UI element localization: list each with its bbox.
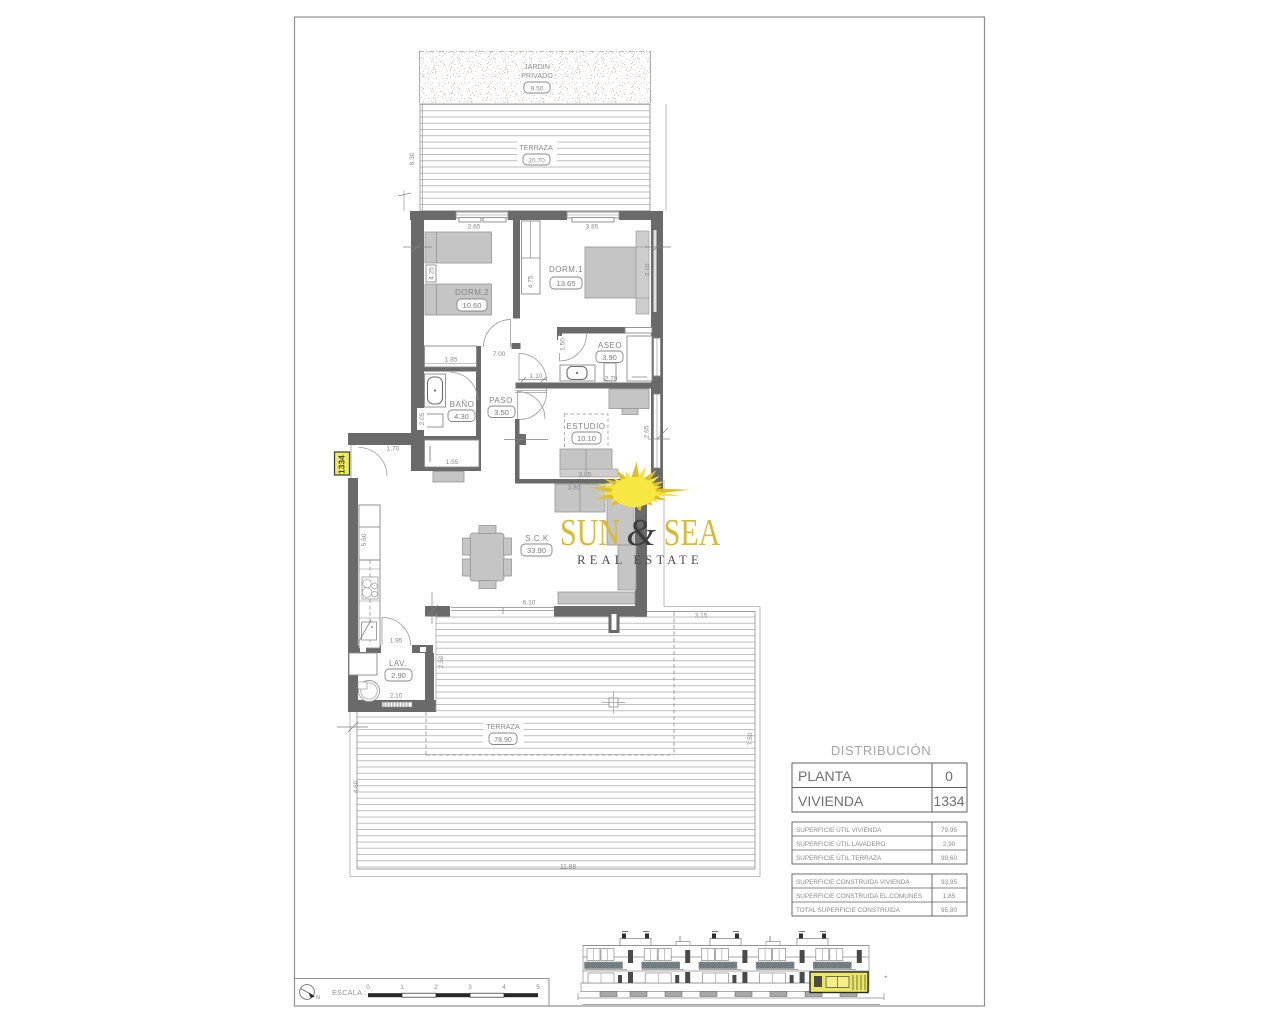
svg-text:13.65: 13.65: [556, 279, 575, 288]
svg-text:TOTAL SUPERFICIE CONSTRUIDA: TOTAL SUPERFICIE CONSTRUIDA: [796, 907, 901, 914]
svg-text:4: 4: [502, 984, 506, 991]
svg-text:SUPERFICIE ÚTIL VIVIENDA: SUPERFICIE ÚTIL VIVIENDA: [796, 825, 882, 834]
svg-text:2.90: 2.90: [391, 671, 406, 680]
svg-text:79,95: 79,95: [941, 827, 957, 834]
svg-text:ESCALA :: ESCALA :: [332, 988, 366, 997]
svg-text:ESTUDIO: ESTUDIO: [566, 422, 605, 431]
svg-text:1,85: 1,85: [943, 893, 956, 900]
svg-text:SUN: SUN: [560, 512, 620, 554]
svg-text:10.10: 10.10: [577, 434, 596, 443]
svg-text:3.85: 3.85: [586, 224, 599, 231]
svg-text:3.85: 3.85: [579, 472, 592, 479]
svg-text:1.70: 1.70: [387, 446, 400, 453]
svg-text:1.50: 1.50: [560, 338, 567, 351]
svg-text:DORM.1: DORM.1: [549, 265, 583, 274]
svg-text:BAÑO: BAÑO: [450, 400, 475, 409]
svg-text:SUPERFICIE CONSTRUIDA VIVIENDA: SUPERFICIE CONSTRUIDA VIVIENDA: [796, 879, 910, 886]
svg-text:2.10: 2.10: [390, 693, 403, 700]
svg-text:2,90: 2,90: [943, 841, 956, 848]
svg-text:ASEO: ASEO: [598, 341, 622, 350]
svg-text:78.90: 78.90: [494, 737, 512, 744]
svg-text:1334: 1334: [933, 793, 964, 809]
svg-text:99,60: 99,60: [941, 855, 957, 862]
svg-text:0: 0: [945, 768, 953, 784]
svg-text:20.70: 20.70: [528, 158, 545, 165]
svg-text:DORM.2: DORM.2: [455, 288, 489, 297]
svg-text:DISTRIBUCIÓN: DISTRIBUCIÓN: [831, 743, 931, 758]
svg-text:S.C.K: S.C.K: [525, 534, 549, 543]
svg-text:PLANTA: PLANTA: [798, 768, 852, 784]
svg-text:33.90: 33.90: [527, 546, 546, 555]
svg-text:VIVIENDA: VIVIENDA: [798, 793, 864, 809]
svg-text:11.88: 11.88: [560, 864, 576, 871]
svg-text:3.80: 3.80: [568, 485, 581, 492]
svg-text:SUPERFICIE CONSTRUIDA EL.COMUN: SUPERFICIE CONSTRUIDA EL.COMUNES: [796, 893, 922, 900]
svg-text:0: 0: [366, 984, 370, 991]
svg-text:2.05: 2.05: [419, 412, 426, 425]
svg-text:LAV.: LAV.: [389, 659, 407, 668]
svg-text:2.70: 2.70: [605, 376, 618, 383]
svg-text:2.65: 2.65: [468, 224, 481, 231]
svg-text:1.95: 1.95: [390, 638, 403, 645]
svg-text:7.50: 7.50: [747, 732, 754, 745]
svg-text:1.85: 1.85: [445, 357, 458, 364]
svg-text:SUPERFICIE ÚTIL LAVADERO: SUPERFICIE ÚTIL LAVADERO: [796, 839, 885, 848]
svg-text:1.10: 1.10: [530, 373, 543, 380]
svg-text:3.90: 3.90: [602, 353, 617, 362]
svg-text:N: N: [316, 995, 320, 1001]
svg-text:7.00: 7.00: [493, 351, 506, 358]
svg-text:PASO: PASO: [489, 396, 513, 405]
svg-text:3.10: 3.10: [645, 263, 652, 276]
svg-text:4.75: 4.75: [528, 275, 535, 288]
svg-text:JARDIN: JARDIN: [524, 62, 550, 71]
svg-text:1.55: 1.55: [446, 459, 459, 466]
svg-text:1334: 1334: [337, 455, 347, 474]
svg-text:2.65: 2.65: [644, 425, 651, 438]
svg-text:95,80: 95,80: [941, 907, 957, 914]
svg-text:TERRAZA: TERRAZA: [486, 722, 520, 731]
svg-text:3.50: 3.50: [494, 408, 509, 417]
svg-text:SUPERFICIE ÚTIL TERRAZA: SUPERFICIE ÚTIL TERRAZA: [796, 853, 882, 862]
svg-text:4.30: 4.30: [454, 412, 469, 421]
svg-text:9.50: 9.50: [531, 86, 544, 93]
svg-text:SEA: SEA: [664, 512, 721, 554]
svg-text:4.25: 4.25: [429, 267, 436, 280]
svg-text:6.10: 6.10: [523, 600, 536, 607]
svg-text:2: 2: [434, 984, 438, 991]
svg-text:3.15: 3.15: [695, 613, 708, 620]
svg-text:&: &: [626, 512, 656, 554]
svg-text:+: +: [884, 975, 888, 981]
svg-text:1: 1: [400, 984, 404, 991]
svg-text:REAL ESTATE: REAL ESTATE: [577, 553, 703, 567]
svg-text:8.30: 8.30: [409, 152, 416, 165]
svg-text:3: 3: [468, 984, 472, 991]
svg-text:4.60: 4.60: [353, 780, 360, 793]
svg-text:5: 5: [536, 984, 540, 991]
svg-text:PRIVADO: PRIVADO: [521, 71, 553, 80]
svg-text:TERRAZA: TERRAZA: [519, 143, 553, 152]
svg-text:5.60: 5.60: [361, 533, 368, 546]
svg-text:10.60: 10.60: [462, 301, 481, 310]
svg-text:93,95: 93,95: [941, 879, 957, 886]
